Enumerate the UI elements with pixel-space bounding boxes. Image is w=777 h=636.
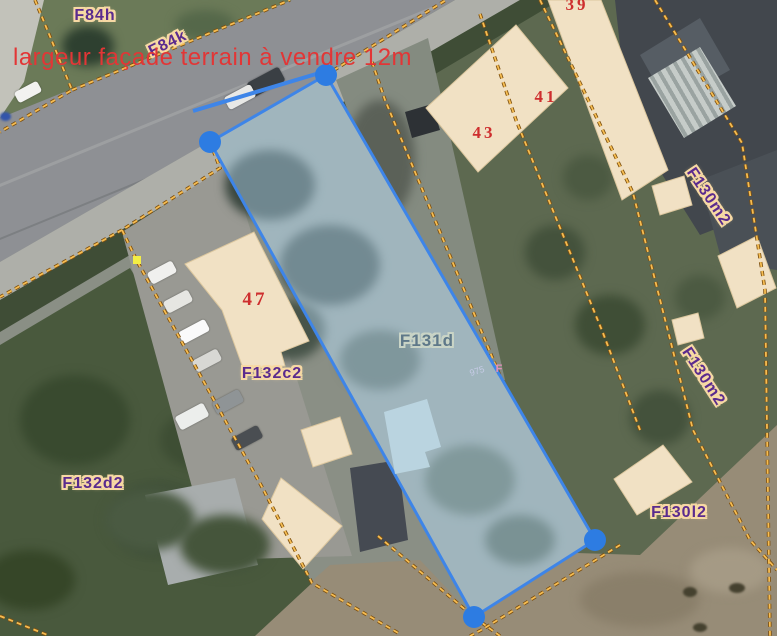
house-number-43: 43 (473, 123, 496, 143)
house-number-41: 41 (535, 87, 558, 107)
selected-parcel-label: F131d (400, 331, 454, 351)
map-canvas[interactable]: F84h F84k F130m2 F130m2 F130l2 F132c2 F1… (0, 0, 777, 636)
parcel-label-f132c2: F132c2 (242, 365, 302, 383)
yellow-marker (133, 256, 141, 264)
building-footprint (262, 478, 342, 569)
cadastral-layer (0, 0, 777, 636)
parcel-label-f132d2: F132d2 (62, 475, 123, 493)
vertex-handle[interactable] (199, 131, 221, 153)
building-footprint-39 (548, 0, 668, 200)
vertex-handle[interactable] (584, 529, 606, 551)
building-footprint (672, 313, 704, 345)
cadastral-boundary-highlight (0, 616, 50, 636)
vertex-handle[interactable] (463, 606, 485, 628)
house-number-39: 39 (566, 0, 589, 15)
cadastral-boundary-highlight (655, 0, 770, 636)
building-footprint (718, 236, 776, 308)
cadastral-boundary-highlight (0, 230, 122, 297)
tiny-parcel-annotation-suffix: F (496, 363, 503, 375)
parcel-label-f130l2: F130l2 (651, 504, 707, 522)
building-footprint (301, 417, 352, 467)
house-number-47: 47 (243, 289, 268, 311)
sale-annotation: largeur façade terrain à vendre 12m (13, 44, 412, 72)
parcel-label-f84h: F84h (74, 7, 115, 25)
